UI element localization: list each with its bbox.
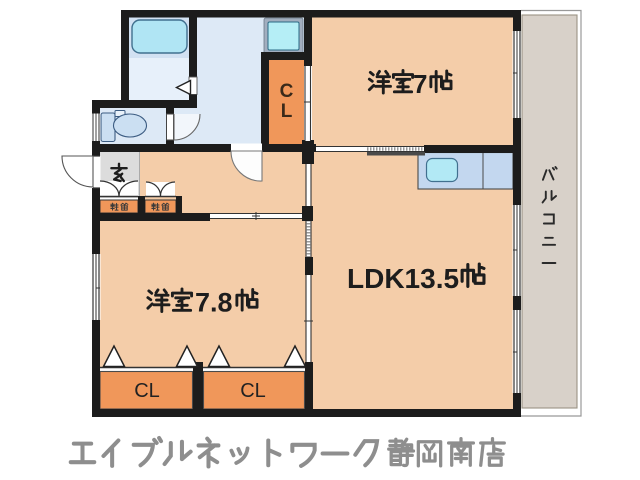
svg-text:7.8: 7.8 [195, 288, 233, 318]
svg-text:CL: CL [240, 380, 266, 402]
svg-text:CL: CL [134, 380, 160, 402]
svg-text:C: C [280, 81, 294, 102]
svg-text:L: L [281, 101, 293, 122]
svg-text:LDK13.5: LDK13.5 [347, 263, 459, 294]
svg-text:7: 7 [413, 69, 427, 99]
